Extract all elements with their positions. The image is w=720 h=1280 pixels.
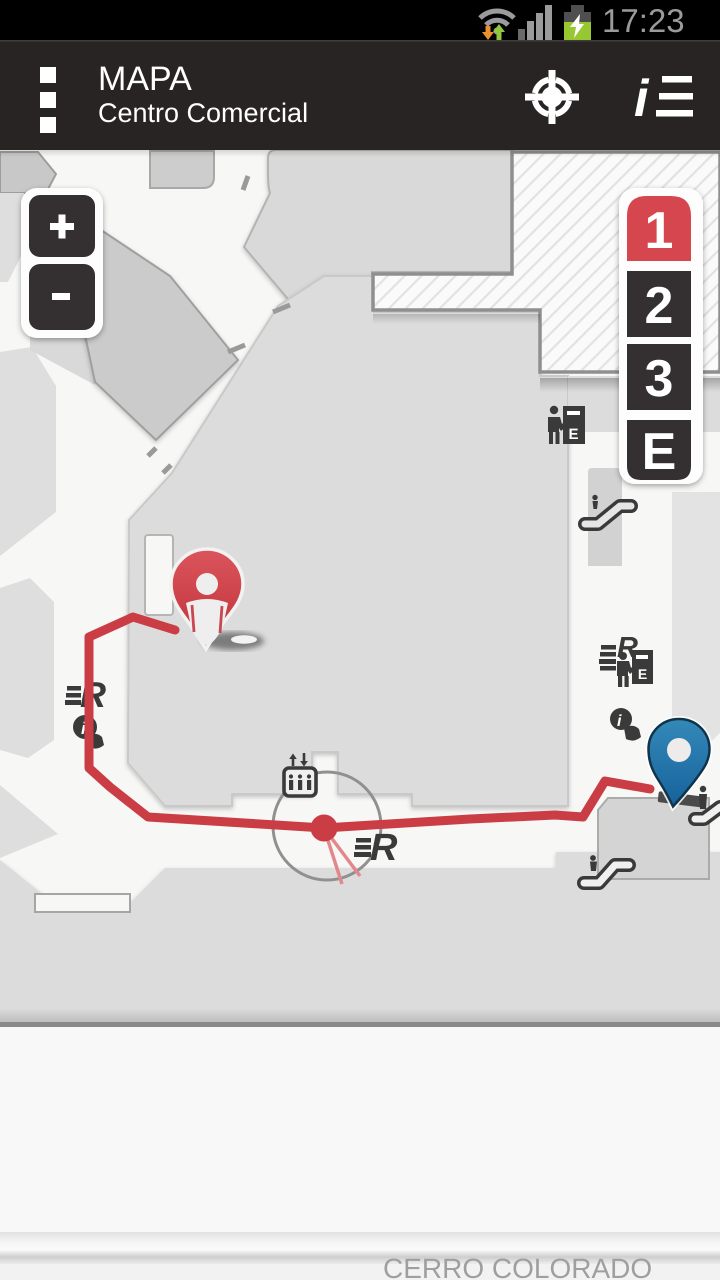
svg-text:17:23: 17:23 [602,2,685,39]
svg-text:2: 2 [645,277,674,335]
svg-text:MAPA: MAPA [98,60,192,98]
svg-text:Centro Comercial: Centro Comercial [98,98,308,128]
svg-text:CERRO COLORADO: CERRO COLORADO [383,1253,652,1280]
svg-text:3: 3 [645,350,674,408]
svg-text:E: E [568,426,578,443]
svg-text:i: i [617,713,622,730]
svg-text:1: 1 [645,202,674,260]
svg-text:R: R [370,827,398,869]
svg-text:E: E [638,666,647,682]
svg-text:i: i [634,70,650,128]
svg-text:E: E [642,423,677,481]
